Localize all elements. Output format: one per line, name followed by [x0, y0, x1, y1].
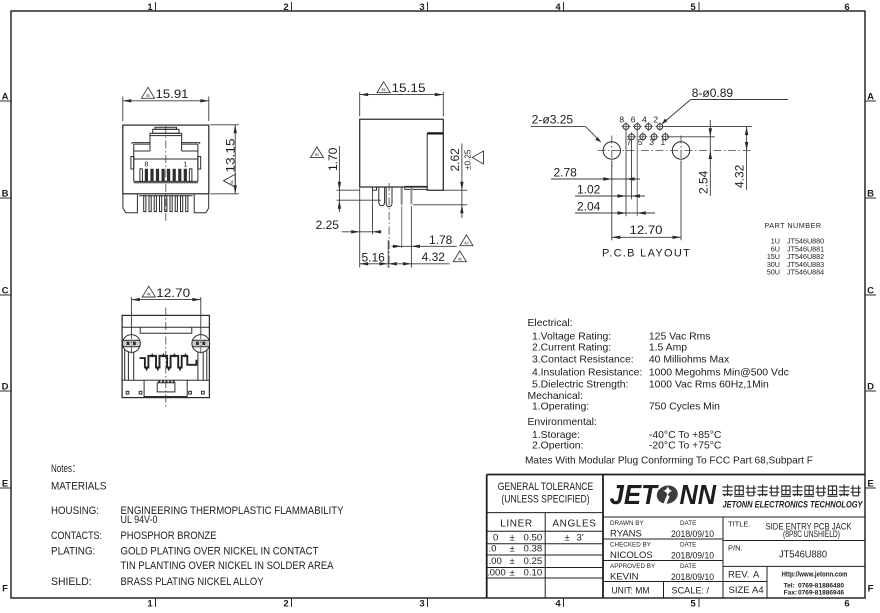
svg-text:2.04: 2.04: [577, 199, 601, 213]
svg-text:5: 5: [690, 599, 696, 610]
svg-text:Mechanical:: Mechanical:: [528, 391, 583, 402]
svg-text:DATE: DATE: [680, 563, 696, 570]
svg-text:±: ±: [565, 533, 570, 544]
svg-text:B: B: [2, 189, 9, 200]
svg-text:8: 8: [619, 115, 624, 125]
svg-text:750 Cycles Min: 750 Cycles Min: [649, 401, 720, 412]
svg-text:TIN PLANTING OVER NICKEL IN SO: TIN PLANTING OVER NICKEL IN SOLDER AREA: [121, 560, 334, 572]
svg-text:JETONN ELECTRONICS TECHNOLOGY: JETONN ELECTRONICS TECHNOLOGY: [723, 500, 864, 510]
svg-text:1000 Vac Rms 60Hz,1Min: 1000 Vac Rms 60Hz,1Min: [649, 380, 769, 391]
svg-text:0.38: 0.38: [524, 544, 543, 555]
svg-text:JT546U884: JT546U884: [787, 268, 824, 277]
svg-text:A: A: [753, 570, 760, 581]
svg-text:1.5 Amp: 1.5 Amp: [649, 343, 687, 354]
svg-text:A: A: [2, 92, 9, 103]
svg-text:1.Voltage Rating:: 1.Voltage Rating:: [532, 332, 611, 343]
svg-text:±: ±: [510, 544, 515, 555]
svg-text:CONTACTS:: CONTACTS:: [51, 530, 102, 542]
svg-text:125 Vac Rms: 125 Vac Rms: [649, 332, 711, 343]
svg-text:12.70: 12.70: [630, 223, 663, 237]
svg-text:.00: .00: [489, 556, 502, 567]
svg-text:4c: 4c: [464, 240, 468, 245]
svg-text:4c: 4c: [458, 256, 462, 261]
svg-text:BRASS PLATING NICKEL ALLOY: BRASS PLATING NICKEL ALLOY: [121, 576, 264, 588]
svg-text:CHECKED BY: CHECKED BY: [610, 542, 652, 549]
svg-text:UNIT: MM: UNIT: MM: [612, 586, 650, 597]
svg-text:Http://www.jetonn.com: Http://www.jetonn.com: [782, 571, 848, 578]
svg-text:15.91: 15.91: [156, 87, 189, 101]
svg-text:1: 1: [147, 599, 153, 610]
svg-text:15.15: 15.15: [392, 81, 426, 95]
svg-text:MATERIALS: MATERIALS: [51, 481, 107, 493]
svg-text:2.25: 2.25: [316, 218, 340, 232]
svg-text:GENERAL TOLERANCE: GENERAL TOLERANCE: [498, 481, 594, 493]
svg-text:3': 3': [577, 533, 584, 544]
svg-text:DATE: DATE: [680, 520, 696, 527]
svg-text:TITLE.: TITLE.: [728, 520, 751, 529]
svg-text:Notes：: Notes：: [51, 463, 80, 475]
svg-text:3: 3: [419, 2, 424, 13]
svg-text:2018/09/10: 2018/09/10: [671, 572, 714, 583]
svg-text:5.16: 5.16: [362, 250, 386, 264]
svg-text:NICOLOS: NICOLOS: [610, 550, 653, 561]
svg-text:4c: 4c: [147, 292, 151, 297]
svg-text:A: A: [867, 92, 874, 103]
svg-text:6: 6: [844, 2, 849, 13]
svg-text:.0: .0: [489, 544, 497, 555]
svg-text:Fax:: Fax:: [784, 589, 798, 596]
svg-text:4.32: 4.32: [733, 164, 747, 188]
svg-text:(8P8C UNSHIELD): (8P8C UNSHIELD): [783, 529, 840, 539]
svg-text:2: 2: [283, 599, 288, 610]
svg-text:.000: .000: [487, 568, 506, 579]
svg-text:NN: NN: [680, 479, 717, 510]
svg-text:0.25: 0.25: [524, 556, 543, 567]
svg-text:50U: 50U: [767, 268, 780, 277]
svg-text:UL 94V-0: UL 94V-0: [121, 514, 158, 526]
svg-text:4c: 4c: [229, 180, 234, 184]
svg-text:2: 2: [283, 2, 288, 13]
svg-text:5.Dielectric Strength:: 5.Dielectric Strength:: [532, 380, 628, 391]
svg-text:A4: A4: [752, 585, 764, 596]
svg-text:6: 6: [844, 599, 849, 610]
svg-text:1: 1: [183, 160, 187, 169]
svg-text:5: 5: [638, 137, 643, 147]
svg-text:4: 4: [555, 2, 561, 13]
svg-text:6: 6: [631, 115, 636, 125]
svg-text:2-ø3.25: 2-ø3.25: [532, 113, 574, 127]
svg-text:SHIELD:: SHIELD:: [51, 576, 92, 588]
svg-text:4: 4: [555, 599, 561, 610]
svg-text:C: C: [867, 286, 874, 297]
svg-text:(UNLESS SPECIFIED): (UNLESS SPECIFIED): [501, 494, 589, 506]
svg-text:HOUSING:: HOUSING:: [51, 505, 99, 517]
svg-text:2.62: 2.62: [448, 148, 462, 172]
svg-text:SIZE: SIZE: [729, 585, 750, 596]
svg-text:3.Contact Resistance:: 3.Contact Resistance:: [532, 355, 634, 366]
svg-text:1.Operating:: 1.Operating:: [532, 401, 589, 412]
svg-text:RYANS: RYANS: [610, 529, 642, 540]
svg-text:±: ±: [510, 533, 515, 544]
svg-text:P/N.: P/N.: [728, 544, 743, 553]
svg-text:±0.25: ±0.25: [463, 149, 472, 170]
svg-text:JT546U880: JT546U880: [779, 549, 827, 561]
svg-text:B: B: [867, 189, 874, 200]
svg-text:2.Opertion:: 2.Opertion:: [532, 440, 583, 451]
svg-text:1.02: 1.02: [577, 182, 601, 196]
svg-text:0: 0: [493, 533, 498, 544]
svg-text:SCALE: /: SCALE: /: [672, 586, 710, 597]
svg-text:ANGLES: ANGLES: [552, 519, 596, 530]
svg-text:0769-81886946: 0769-81886946: [798, 589, 844, 596]
svg-text:1: 1: [147, 2, 153, 13]
svg-text:E: E: [2, 479, 8, 490]
svg-text:2.Current Rating:: 2.Current Rating:: [532, 343, 611, 354]
svg-text:4c: 4c: [146, 93, 150, 98]
svg-text:D: D: [867, 382, 874, 393]
svg-text:13.15: 13.15: [223, 138, 237, 172]
svg-text:1.78: 1.78: [429, 233, 453, 247]
svg-text:DATE: DATE: [680, 542, 696, 549]
svg-text:5: 5: [690, 2, 696, 13]
svg-text:PART NUMBER: PART NUMBER: [765, 221, 822, 230]
svg-text:3: 3: [649, 137, 654, 147]
svg-text:E: E: [867, 479, 873, 490]
svg-text:-20°C To +75°C: -20°C To +75°C: [649, 440, 722, 451]
svg-text:P.C.B LAYOUT: P.C.B LAYOUT: [602, 248, 691, 260]
svg-text:2: 2: [653, 115, 658, 125]
svg-text:2018/09/10: 2018/09/10: [671, 551, 714, 562]
svg-text:8-ø0.89: 8-ø0.89: [692, 86, 734, 100]
svg-text:8: 8: [144, 160, 148, 169]
svg-text:2.54: 2.54: [696, 170, 710, 194]
svg-text:2.78: 2.78: [554, 165, 578, 179]
svg-text:F: F: [868, 584, 874, 595]
svg-text:2018/09/10: 2018/09/10: [671, 529, 714, 540]
svg-text:Environmental:: Environmental:: [528, 417, 597, 428]
svg-text:7: 7: [627, 137, 632, 147]
svg-text:KEVIN: KEVIN: [610, 572, 639, 583]
svg-text:F: F: [2, 584, 8, 595]
svg-text:APPROVED BY: APPROVED BY: [610, 563, 656, 570]
svg-text:4: 4: [642, 115, 647, 125]
svg-text:12.70: 12.70: [156, 286, 190, 300]
svg-text:Electrical:: Electrical:: [528, 318, 573, 329]
svg-text:40 Milliohms Max: 40 Milliohms Max: [649, 355, 730, 366]
svg-text:DRAWN BY: DRAWN BY: [610, 520, 645, 527]
svg-text:4.32: 4.32: [422, 250, 446, 264]
svg-text:1: 1: [661, 137, 666, 147]
svg-text:GOLD PLATING OVER NICKEL IN CO: GOLD PLATING OVER NICKEL IN CONTACT: [121, 546, 319, 558]
svg-text:1000 Megohms Min@500 Vdc: 1000 Megohms Min@500 Vdc: [649, 367, 789, 378]
svg-text:±: ±: [510, 556, 515, 567]
svg-text:REV.: REV.: [728, 570, 749, 581]
svg-text:0.50: 0.50: [524, 533, 543, 544]
svg-text:1.70: 1.70: [326, 147, 340, 171]
svg-text:PLATING:: PLATING:: [51, 546, 95, 558]
svg-text:C: C: [2, 286, 9, 297]
svg-text:0.10: 0.10: [524, 568, 543, 579]
svg-text:Mates With Modular Plug Confor: Mates With Modular Plug Conforming To FC…: [525, 455, 813, 466]
svg-text:D: D: [2, 382, 9, 393]
svg-text:LINER: LINER: [500, 519, 532, 530]
svg-text:4.Insulation Resistance:: 4.Insulation Resistance:: [532, 367, 642, 378]
svg-text:±: ±: [510, 568, 515, 579]
svg-text:3: 3: [419, 599, 424, 610]
svg-text:4c: 4c: [381, 87, 385, 92]
svg-text:4c: 4c: [315, 152, 319, 157]
svg-text:JET: JET: [610, 479, 660, 510]
svg-text:PHOSPHOR BRONZE: PHOSPHOR BRONZE: [121, 530, 217, 542]
